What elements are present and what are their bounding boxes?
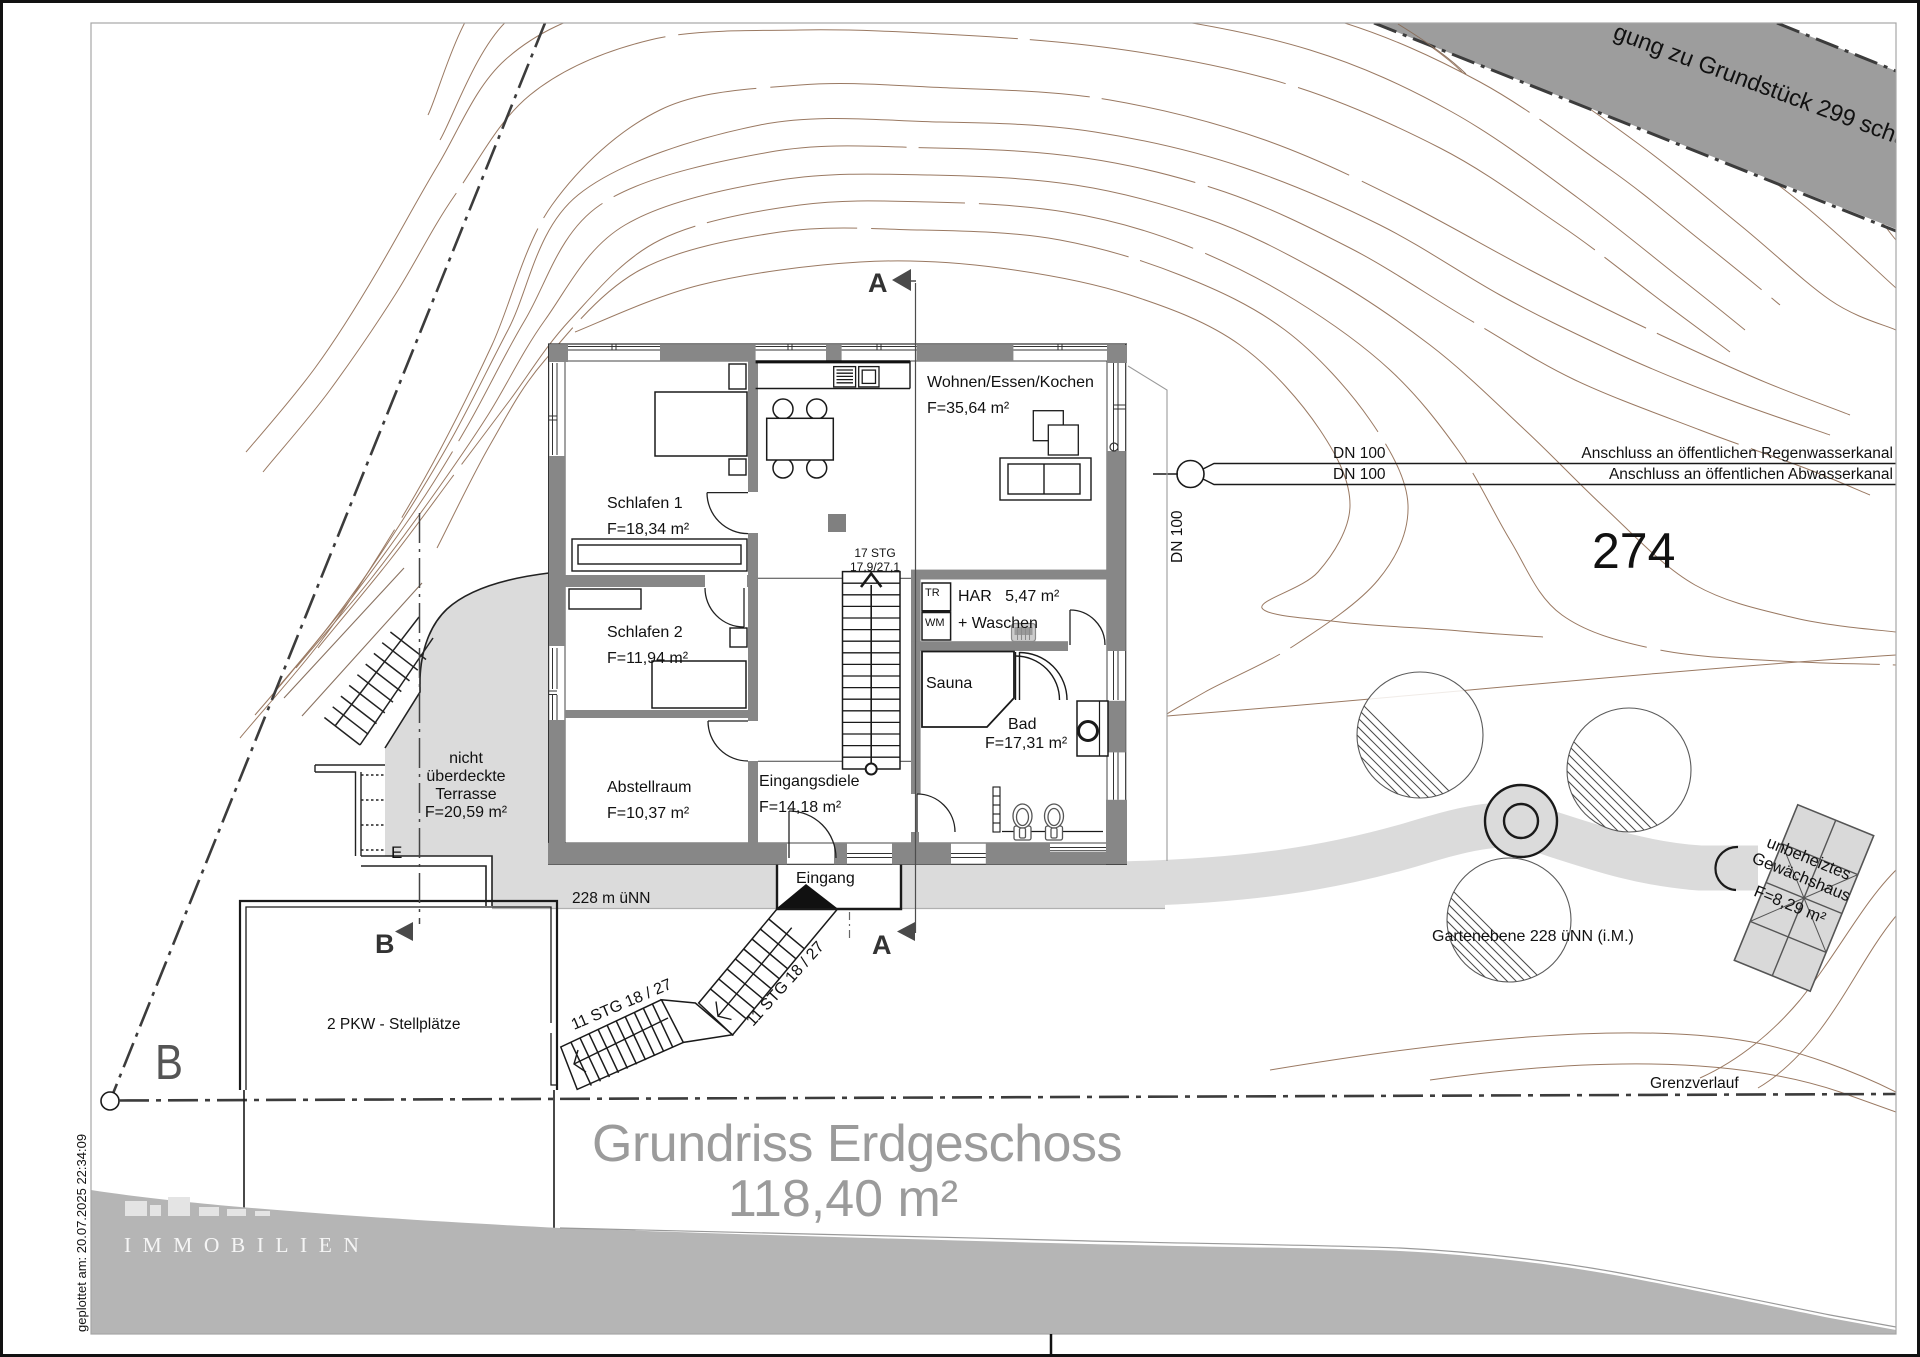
svg-text:F=35,64 m²: F=35,64 m² [927, 400, 1010, 417]
svg-text:Anschluss an öffentlichen Abwa: Anschluss an öffentlichen Abwasserkanal [1609, 466, 1893, 483]
svg-text:Grundriss Erdgeschoss: Grundriss Erdgeschoss [592, 1115, 1122, 1173]
svg-text:HAR 5,47 m²: HAR 5,47 m² [958, 588, 1060, 605]
svg-text:IMMOBILIEN: IMMOBILIEN [124, 1233, 370, 1257]
svg-text:+ Waschen: + Waschen [958, 615, 1038, 632]
svg-text:DN 100: DN 100 [1169, 510, 1186, 563]
svg-text:118,40 m²: 118,40 m² [728, 1170, 958, 1228]
svg-text:274: 274 [1592, 523, 1675, 579]
svg-text:DN 100: DN 100 [1333, 466, 1386, 483]
svg-text:Anschluss an öffentlichen Rege: Anschluss an öffentlichen Regenwasserkan… [1581, 445, 1893, 462]
svg-text:228 m üNN: 228 m üNN [572, 890, 650, 907]
svg-text:F=18,34 m²: F=18,34 m² [607, 521, 690, 538]
svg-text:A: A [872, 930, 892, 960]
svg-text:nicht: nicht [449, 750, 483, 767]
svg-text:geplottet am: 20.07.2025 22:34: geplottet am: 20.07.2025 22:34:09 [74, 1134, 89, 1332]
svg-text:E: E [391, 843, 402, 862]
svg-text:Bad: Bad [1008, 716, 1036, 733]
svg-text:F=10,37 m²: F=10,37 m² [607, 805, 690, 822]
svg-text:Gartenebene 228 üNN (i.M.): Gartenebene 228 üNN (i.M.) [1432, 928, 1634, 945]
svg-text:2 PKW - Stellplätze: 2 PKW - Stellplätze [327, 1016, 461, 1033]
svg-text:WM: WM [925, 617, 945, 629]
svg-text:Eingang: Eingang [796, 870, 855, 887]
svg-text:TR: TR [925, 587, 940, 599]
svg-text:17 STG: 17 STG [854, 546, 895, 560]
svg-text:F=11,94 m²: F=11,94 m² [607, 650, 689, 667]
svg-text:Wohnen/Essen/Kochen: Wohnen/Essen/Kochen [927, 374, 1094, 391]
svg-text:Grenzverlauf: Grenzverlauf [1650, 1075, 1739, 1092]
svg-text:F=14,18 m²: F=14,18 m² [759, 799, 842, 816]
svg-text:Sauna: Sauna [926, 675, 972, 692]
svg-text:überdeckte: überdeckte [426, 768, 505, 785]
svg-text:Abstellraum: Abstellraum [607, 779, 691, 796]
svg-text:B: B [375, 929, 395, 959]
svg-text:Schlafen 2: Schlafen 2 [607, 624, 683, 641]
svg-text:F=20,59 m²: F=20,59 m² [425, 804, 508, 821]
svg-text:A: A [868, 268, 888, 298]
svg-text:B: B [155, 1036, 183, 1090]
svg-text:F=17,31 m²: F=17,31 m² [985, 735, 1068, 752]
svg-text:Schlafen 1: Schlafen 1 [607, 495, 683, 512]
svg-text:Eingangsdiele: Eingangsdiele [759, 773, 860, 790]
svg-text:DN 100: DN 100 [1333, 445, 1386, 462]
svg-text:Terrasse: Terrasse [435, 786, 496, 803]
svg-text:17,9/27,1: 17,9/27,1 [850, 560, 900, 574]
